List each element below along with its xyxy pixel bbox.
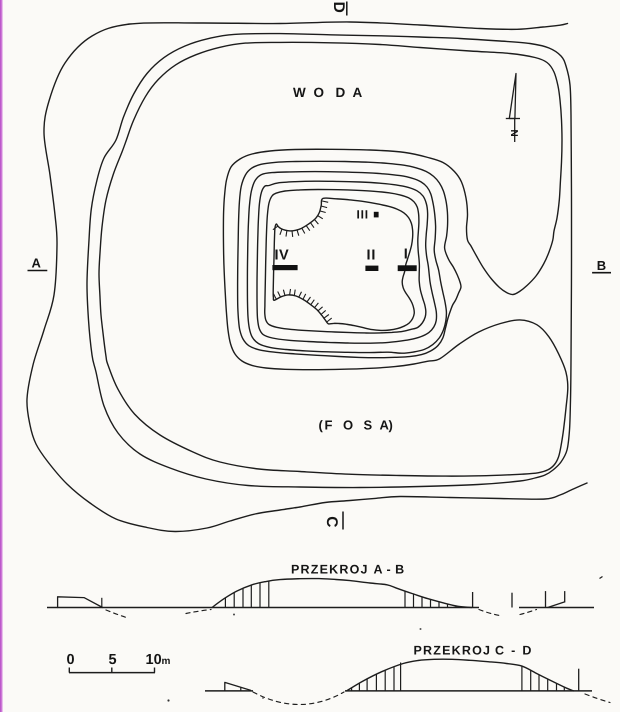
svg-text:D: D (336, 85, 346, 100)
svg-text:W: W (293, 85, 306, 100)
svg-text:A: A (353, 85, 363, 100)
svg-text:II: II (367, 248, 377, 264)
svg-text:C - D: C - D (495, 644, 533, 658)
svg-text:D: D (330, 2, 347, 13)
svg-text:S: S (364, 418, 373, 433)
svg-text:PRZEKROJ: PRZEKROJ (414, 644, 492, 658)
svg-text:O: O (314, 85, 325, 100)
svg-text:IV: IV (275, 248, 290, 264)
svg-text:N: N (508, 130, 519, 137)
svg-text:B: B (597, 258, 606, 273)
svg-text:O: O (343, 418, 353, 433)
svg-text:A: A (32, 256, 42, 271)
svg-text:10: 10 (146, 652, 162, 668)
svg-text:(: ( (319, 418, 324, 433)
svg-text:m: m (162, 656, 171, 667)
svg-text:5: 5 (109, 652, 117, 668)
svg-text:PRZEKROJ: PRZEKROJ (291, 563, 369, 577)
svg-text:A - B: A - B (374, 563, 405, 577)
svg-text:III: III (357, 208, 369, 222)
svg-text:F: F (325, 418, 333, 433)
svg-text:0: 0 (67, 652, 75, 668)
svg-text:I: I (404, 247, 408, 263)
svg-text:C: C (323, 516, 340, 527)
svg-text:): ) (389, 418, 393, 433)
